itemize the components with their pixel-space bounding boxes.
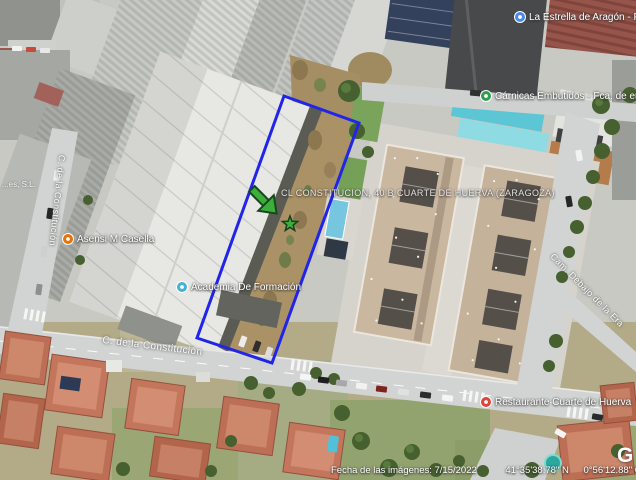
poi-academia[interactable]: Academia De Formación [176,281,301,293]
business-pin-icon[interactable] [62,233,74,245]
google-watermark: G [617,444,633,468]
school-pin-icon[interactable] [176,281,188,293]
restaurant-pin-icon[interactable] [480,396,492,408]
partial-business-label: ...es, S.L. [2,180,36,189]
house-roof [0,331,51,385]
poi-label[interactable]: Restaurante Cuarte de Huerva [495,397,631,408]
house-roof [149,436,210,480]
house-roof [44,354,109,418]
house-roof [217,396,280,455]
poi-label[interactable]: Academia De Formación [191,282,301,293]
poi-label[interactable]: La Estrella de Aragón - Famili [529,12,636,23]
poi-carnicas[interactable]: Cárnicas Embutidos - Fca. de embutidos [480,90,636,102]
poi-label[interactable]: Asensi M Casella [77,234,154,245]
poi-label[interactable]: Cárnicas Embutidos - Fca. de embutidos [495,91,636,102]
satellite-map-view[interactable]: CL CONSTITUCION, 40 B CUARTE DE HUERVA (… [0,0,636,480]
poi-la-estrella[interactable]: La Estrella de Aragón - Famili [514,11,636,23]
store-pin-icon[interactable] [514,11,526,23]
house-roof [125,378,185,435]
imagery-date: Fecha de las imágenes: 7/15/2022 [331,465,477,476]
parcel-address-label: CL CONSTITUCION, 40 B CUARTE DE HUERVA (… [281,188,555,198]
factory-pin-icon[interactable] [480,90,492,102]
rooftop-solar-panel [59,376,81,392]
attribution-bar: Fecha de las imágenes: 7/15/2022 41°35'3… [331,465,636,476]
house-roof [0,393,45,448]
house-roof [51,426,115,480]
poi-asensi[interactable]: Asensi M Casella [62,233,154,245]
poi-restaurante[interactable]: Restaurante Cuarte de Huerva [480,396,631,408]
latitude-readout: 41°35'38.78" N [505,465,568,476]
